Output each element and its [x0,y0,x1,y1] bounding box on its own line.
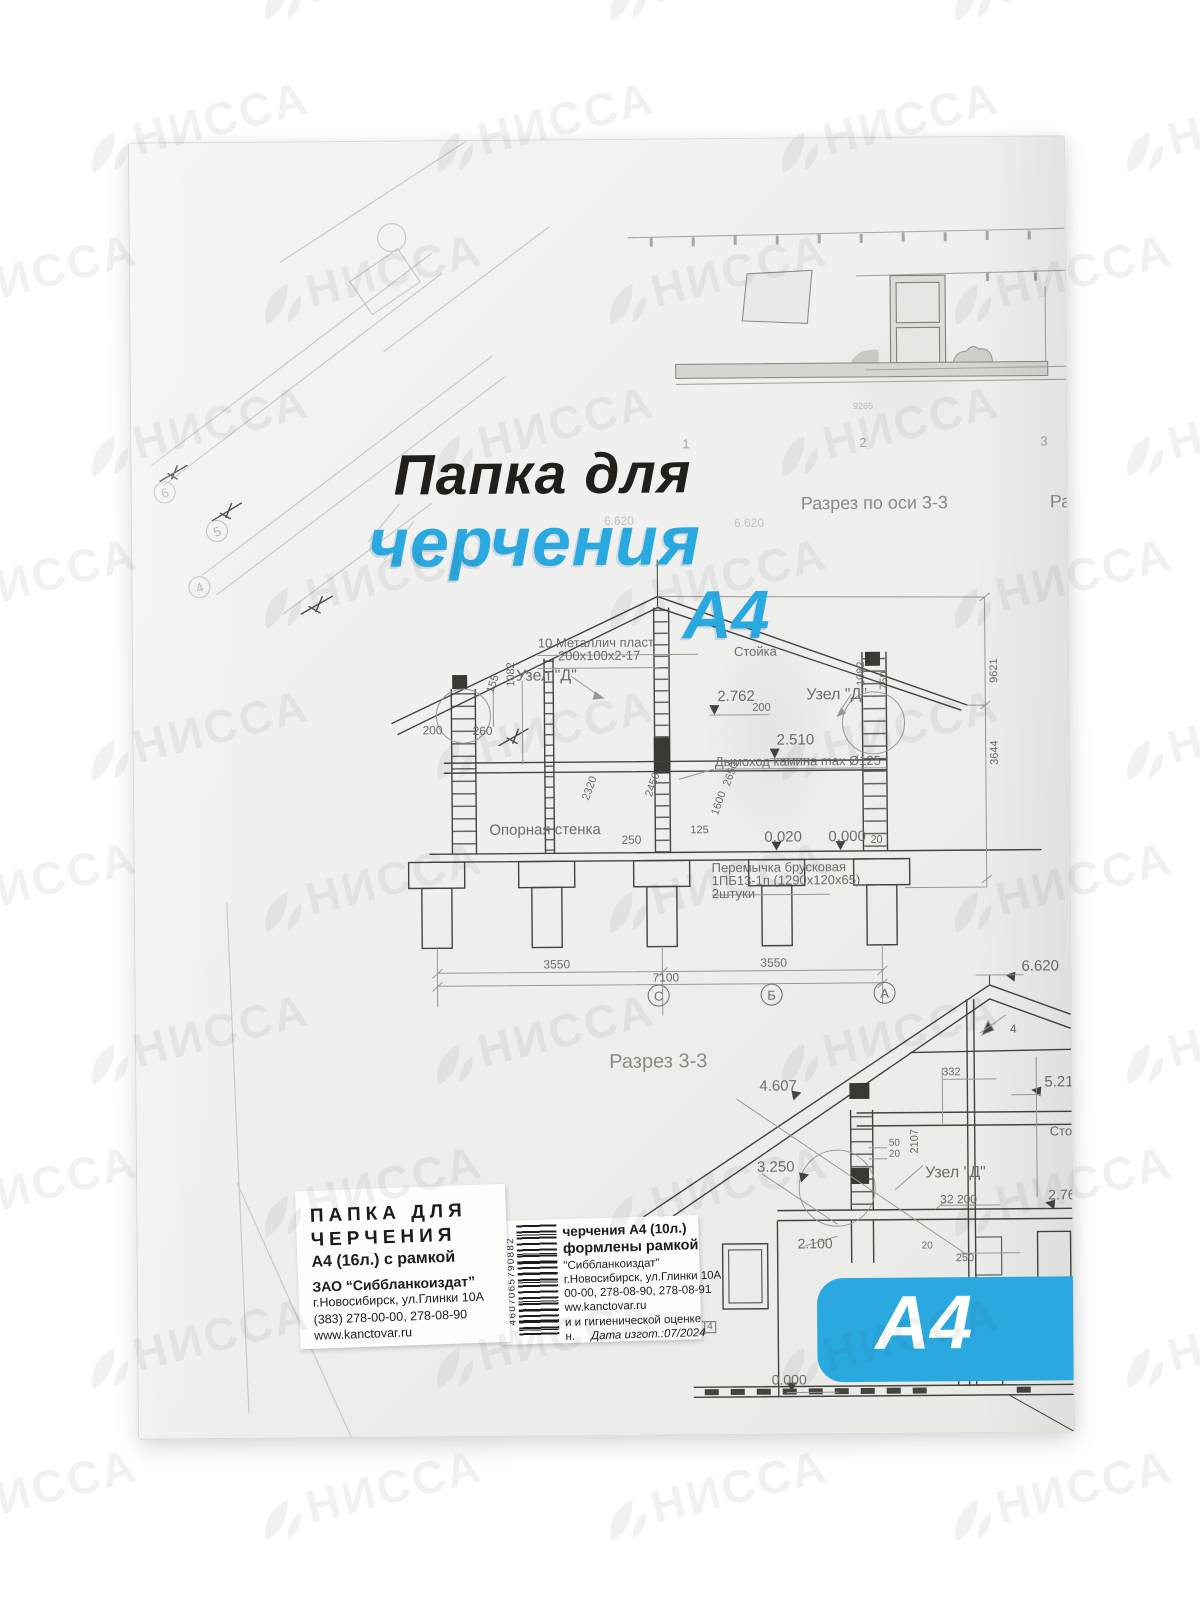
dimension-label: 2.510 [777,732,815,747]
nissa-leaf-icon [81,1341,134,1394]
nissa-watermark: НИССА [597,0,833,26]
nissa-leaf-icon [254,1493,307,1546]
dimension-label: 6.620 [1021,958,1059,973]
dimension-label: 6.620 [604,515,634,527]
dimension-label: 5.210 [1044,1074,1075,1089]
dimension-label: 2107 [910,1129,921,1154]
dimension-label: Ра [1050,492,1072,510]
manufacture-date: Дата изгот.:07/2024 [591,1327,706,1342]
nissa-watermark: НИССА [0,1134,143,1242]
nissa-watermark: НИССА [942,1438,1178,1546]
nissa-watermark: НИССА [942,0,1178,26]
grid-axis-label: С [648,984,670,1006]
dimension-label: 7100 [652,971,679,983]
nissa-watermark: НИССА [0,1438,143,1546]
dimension-label: 6.620 [734,517,764,529]
dimension-label: 32 200 [940,1193,977,1205]
dimension-label: 3 [1040,434,1047,447]
product-photo: Папка для черчения А4 Разрез по оси 3-3Р… [0,0,1200,1600]
dimension-label: 2.76 [1048,1187,1075,1201]
nissa-watermark: НИССА [597,1438,833,1546]
dimension-label: 9265 [853,402,873,411]
grid-axis-label: А [874,982,896,1004]
dimension-label: 2 [859,436,866,449]
dimension-label: 250 [956,1253,974,1264]
nissa-leaf-icon [81,1037,134,1090]
dimension-label: 1082 [506,662,517,687]
dimension-label: Узел "Д" [806,687,867,703]
size-badge-label: А4 [875,1285,973,1362]
nissa-leaf-icon [1116,125,1169,178]
dimension-label: 3644 [990,740,1001,765]
nissa-watermark: НИССА [0,0,143,26]
dimension-label: 200х100х2-17 [558,649,641,663]
barcode-bars [516,1224,559,1336]
dimension-label: 0.000 [772,1372,807,1386]
nissa-leaf-icon [1116,733,1169,786]
nissa-leaf-icon [81,125,134,178]
nissa-leaf-icon [599,0,652,26]
dimension-label: 250 [621,834,641,846]
dimension-label: 1082 [856,661,867,686]
nissa-watermark: НИССА [1114,374,1200,482]
dimension-label: Узел "Д" [925,1165,986,1181]
dimension-label: 750 [879,671,890,689]
dimension-label: 9621 [989,658,1000,683]
dimension-label: 3550 [543,958,570,970]
nissa-watermark: НИССА [1114,70,1200,178]
info-sticker-left: ПАПКА ДЛЯ ЧЕРЧЕНИЯ А4 (16л.) с рамкой ЗА… [295,1184,511,1349]
dimension-label: 1 [682,437,689,450]
dimension-label: 4.607 [759,1078,797,1093]
dimension-label: 125 [690,825,708,836]
dimension-label: 0.020 [764,829,802,844]
nissa-watermark: НИССА [252,1438,488,1546]
dimension-label: Разрез 3-3 [609,1051,707,1072]
product-title-line2: черчения [368,505,702,578]
dimension-label: 2штуки [712,887,755,900]
nissa-watermark: НИССА [0,830,143,938]
product-title-line1: Папка для [393,445,691,504]
dimension-label: 20 [870,835,882,846]
dimension-label: Узел "Д" [516,668,577,684]
dimension-label: 20 [922,1241,933,1251]
product-title-line3: А4 [682,581,769,650]
nissa-leaf-icon [599,1493,652,1546]
info-sticker-right: 4607065790882 черчения А4 (10л.) формлен… [498,1215,701,1345]
nissa-watermark: НИССА [0,222,143,330]
nissa-leaf-icon [1116,1341,1169,1394]
dimension-label: 2.762 [717,689,755,704]
dimension-label: 0.000 [828,829,866,844]
dimension-label: 332 [942,1067,960,1078]
nissa-watermark: НИССА [1114,678,1200,786]
dimension-label: 3550 [760,957,787,969]
dimension-label: 4 [1010,1023,1017,1035]
nissa-leaf-icon [944,0,997,26]
dimension-label: 3.250 [757,1159,795,1174]
nissa-leaf-icon [944,1493,997,1546]
nissa-watermark: НИССА [1114,982,1200,1090]
nissa-leaf-icon [1116,429,1169,482]
dimension-label: 2.100 [798,1236,833,1250]
dimension-label: Опорная стенка [489,822,601,838]
nissa-leaf-icon [81,733,134,786]
dimension-label: 50 [889,1139,900,1149]
nissa-watermark: НИССА [252,0,488,26]
folder-cover: Папка для черчения А4 Разрез по оси 3-3Р… [128,135,1075,1439]
dimension-label: Стой [1050,1124,1075,1137]
dimension-label: Разрез по оси 3-3 [801,493,948,512]
nissa-leaf-icon [254,0,307,26]
size-badge: А4 [817,1276,1075,1382]
dimension-label: 260 [473,725,493,737]
nissa-leaf-icon [1116,1037,1169,1090]
dimension-label: 20 [889,1150,900,1160]
grid-axis-label: Б [761,984,783,1006]
nissa-watermark: НИССА [0,526,143,634]
dimension-label: 200 [422,724,442,736]
dimension-label: 200 [752,703,770,714]
nissa-watermark: НИССА [1114,1286,1200,1394]
nissa-leaf-icon [81,429,134,482]
dimension-label: Стойка [734,645,777,658]
